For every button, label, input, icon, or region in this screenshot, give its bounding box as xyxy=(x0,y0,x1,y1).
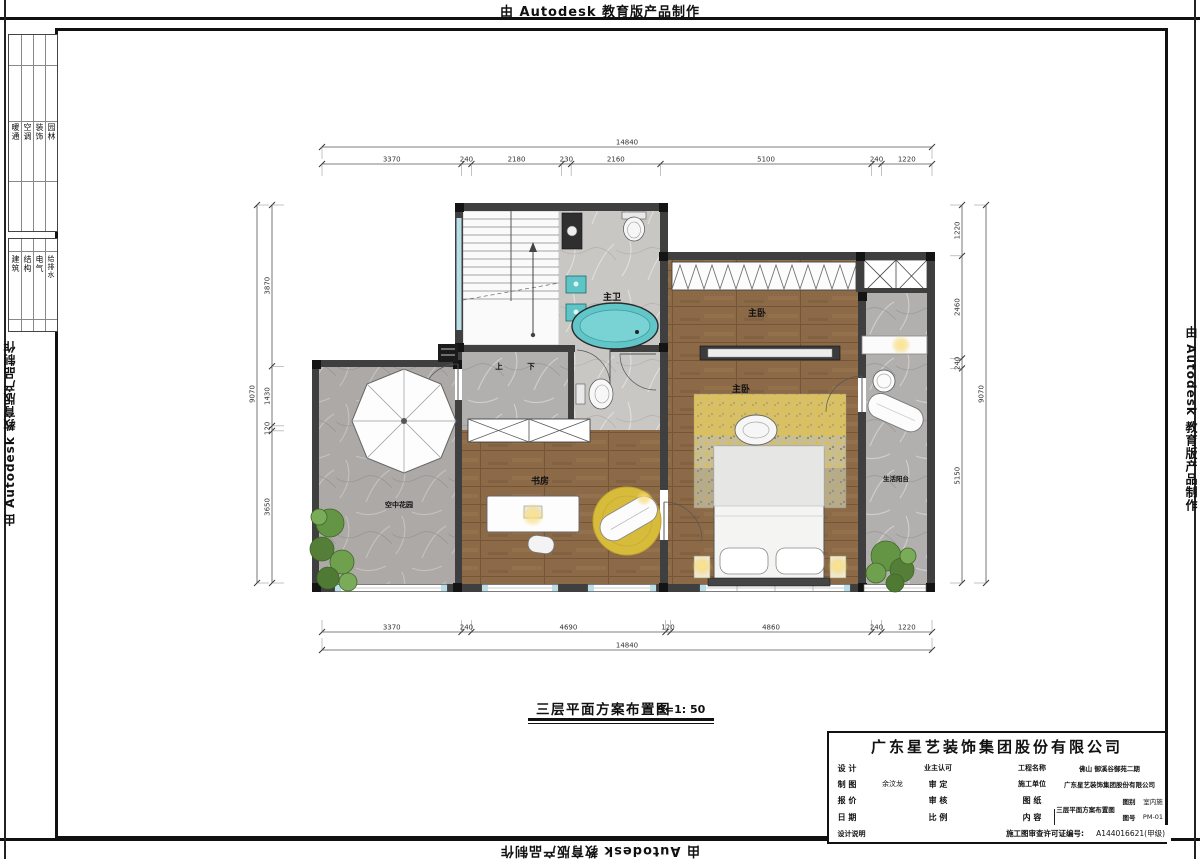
autodesk-banner-top: 由 Autodesk 教育版产品制作 xyxy=(0,1,1200,20)
approve-label: 审 定 xyxy=(920,776,957,793)
autodesk-banner-left: 由 Autodesk 教育版产品制作 xyxy=(1,340,18,526)
owner-approval-label: 业主认可 xyxy=(920,760,957,777)
autodesk-banner-bottom: 由 Autodesk 教育版产品制作 xyxy=(0,843,1200,862)
discipline-label: 结构 xyxy=(21,255,33,273)
drawing-frame xyxy=(55,28,1168,839)
signature-table-upper: 暖通 空调 装饰 园林 xyxy=(8,34,58,232)
approve-cell xyxy=(956,776,1011,793)
quote-cell xyxy=(865,792,921,810)
discipline-label: 装饰 xyxy=(33,123,45,141)
date-cell xyxy=(865,809,921,826)
design-label: 设 计 xyxy=(829,760,866,777)
draft-value: 余汶龙 xyxy=(865,776,921,793)
category-label: 图别 xyxy=(1117,792,1142,810)
design-value-cell xyxy=(865,760,921,777)
quote-label: 报 价 xyxy=(829,792,866,810)
scale-cell xyxy=(956,809,1011,826)
permit-value: A144016621(甲级) xyxy=(1096,828,1165,839)
draft-label: 制 图 xyxy=(829,776,866,793)
scale-label: 比 例 xyxy=(920,809,957,826)
contractor-label: 施工单位 xyxy=(1010,776,1055,793)
permit-label: 施工图审查许可证编号: xyxy=(1006,828,1084,839)
discipline-label: 给排水 xyxy=(45,255,57,279)
permit-row: 施工图审查许可证编号: A144016621(甲级) xyxy=(874,825,1171,842)
drawing-sheet: 三层平面方案布置图 S=1: 50 1484033702402180230216… xyxy=(0,0,1200,859)
drawing-content-value: 三层平面方案布置图 xyxy=(1054,792,1118,826)
drawing-label: 图 纸 xyxy=(1010,792,1055,810)
discipline-label: 空调 xyxy=(21,123,33,141)
check-label: 审 核 xyxy=(920,792,957,810)
content-label: 内 容 xyxy=(1010,809,1055,826)
project-name-label: 工程名称 xyxy=(1010,760,1055,777)
signature-table-lower: 建筑 结构 电气 给排水 xyxy=(8,238,58,332)
title-block: 广东星艺装饰集团股份有限公司 设 计 业主认可 工程名称 佛山 御溪谷御苑二期 … xyxy=(827,731,1167,844)
check-cell xyxy=(956,792,1011,810)
category-value: 室内施 xyxy=(1141,792,1165,810)
discipline-label: 暖通 xyxy=(9,123,21,141)
number-value: PM-01 xyxy=(1141,809,1165,826)
project-name-value: 佛山 御溪谷御苑二期 xyxy=(1054,760,1165,777)
contractor-value: 广东星艺装饰集团股份有限公司 xyxy=(1054,776,1165,793)
discipline-label: 建筑 xyxy=(9,255,21,273)
discipline-label: 电气 xyxy=(33,255,45,273)
owner-approval-cell xyxy=(956,760,1011,777)
date-label: 日 期 xyxy=(829,809,866,826)
autodesk-banner-right: 由 Autodesk 教育版产品制作 xyxy=(1183,326,1200,512)
discipline-label: 园林 xyxy=(45,123,57,141)
number-label: 图号 xyxy=(1117,809,1142,826)
notes-label: 设计说明 xyxy=(829,825,875,842)
company-name: 广东星艺装饰集团股份有限公司 xyxy=(829,733,1165,762)
